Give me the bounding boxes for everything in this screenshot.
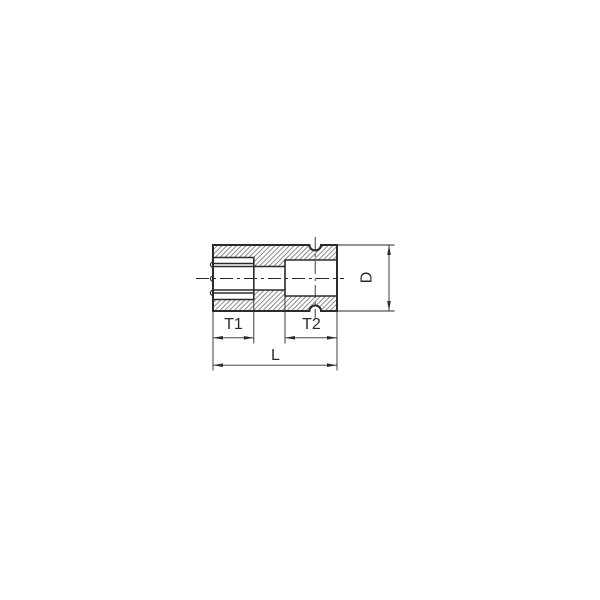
l-label: L: [271, 347, 280, 364]
arrowhead-right-icon: [327, 363, 337, 367]
square-drive-cavity: [285, 260, 337, 296]
arrowhead-left-icon: [213, 336, 223, 340]
arrowhead-left-icon: [285, 336, 295, 340]
t1-label: T1: [224, 316, 243, 333]
dimension-t1: T1: [213, 316, 254, 340]
arrowhead-left-icon: [213, 363, 223, 367]
t2-label: T2: [302, 316, 321, 333]
arrowhead-top-icon: [387, 245, 391, 255]
arrowhead-right-icon: [244, 336, 254, 340]
dimension-d: D: [359, 245, 391, 311]
arrowhead-bottom-icon: [387, 301, 391, 311]
dimension-l: L: [213, 347, 337, 367]
section-hatch-fill: [213, 245, 337, 311]
dimension-t2: T2: [285, 316, 337, 340]
socket-technical-drawing: T1 T2 L D: [0, 0, 600, 600]
arrowhead-right-icon: [327, 336, 337, 340]
d-label: D: [359, 272, 376, 284]
drawing-canvas: T1 T2 L D: [0, 0, 600, 600]
